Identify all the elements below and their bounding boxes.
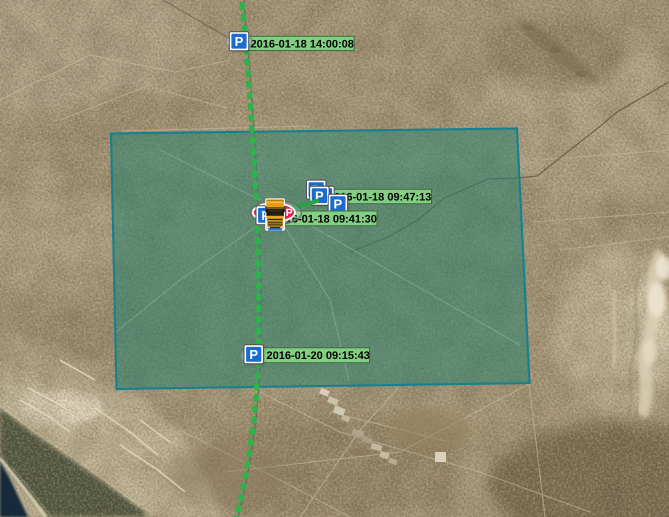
svg-text:2016-01-18 14:00:08: 2016-01-18 14:00:08 [251,38,354,50]
svg-text:2016-01-20 09:15:43: 2016-01-20 09:15:43 [267,350,370,362]
